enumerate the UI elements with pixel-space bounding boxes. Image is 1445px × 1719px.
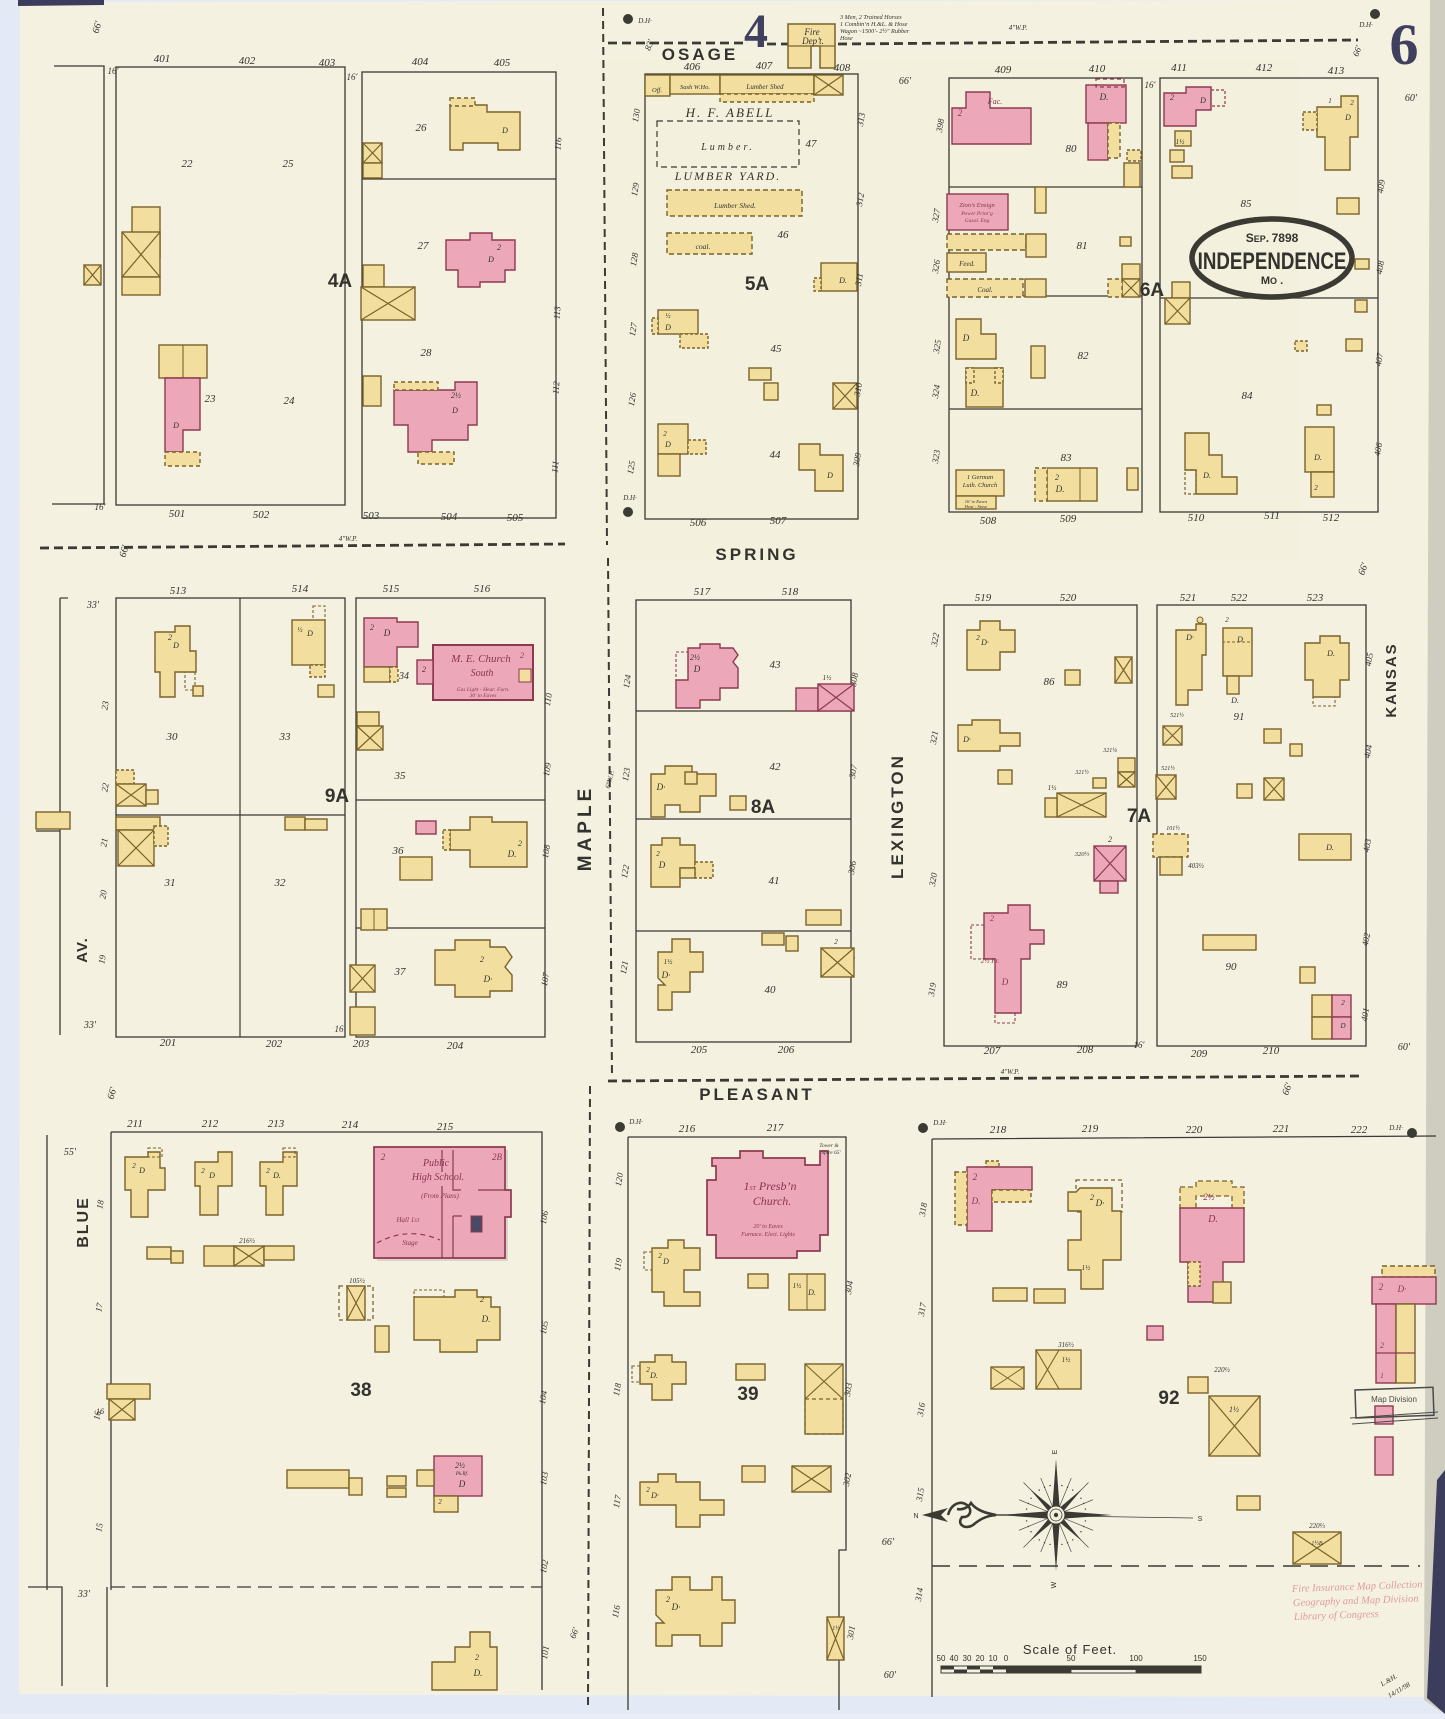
svg-text:401: 401 [154,53,171,65]
svg-text:213: 213 [268,1118,285,1130]
svg-text:2: 2 [370,623,374,632]
svg-text:86: 86 [1044,676,1056,688]
svg-text:BLUE: BLUE [75,1196,92,1248]
svg-text:SEP. 7898: SEP. 7898 [1246,231,1299,245]
svg-text:210: 210 [1263,1045,1280,1057]
svg-text:20: 20 [976,1654,985,1663]
svg-text:3 Men, 2 Trained Horses: 3 Men, 2 Trained Horses [839,14,902,21]
svg-text:66′: 66′ [899,76,912,87]
svg-text:2: 2 [381,1152,386,1162]
svg-text:502: 502 [253,509,270,521]
svg-text:1½: 1½ [1048,784,1058,792]
svg-text:16′: 16′ [1134,1040,1146,1050]
svg-text:1: 1 [1380,1372,1384,1380]
svg-text:23: 23 [205,393,217,405]
svg-text:Off.: Off. [652,87,662,94]
svg-text:2: 2 [1341,999,1345,1007]
svg-text:90: 90 [1226,961,1238,973]
svg-text:Hose: Hose [839,35,853,42]
svg-text:403: 403 [319,57,336,69]
svg-text:85: 85 [1241,198,1253,210]
svg-text:2½: 2½ [1203,1192,1215,1202]
svg-text:22: 22 [182,158,194,170]
svg-text:D.H·: D.H· [1388,1124,1403,1132]
svg-text:D.H·: D.H· [622,494,637,502]
svg-text:D·: D· [1397,1284,1407,1294]
svg-text:SPRING: SPRING [715,545,798,564]
svg-text:204: 204 [447,1040,464,1052]
svg-text:409: 409 [995,64,1012,76]
svg-text:40: 40 [950,1654,959,1663]
svg-text:33′: 33′ [77,1589,91,1600]
svg-text:508: 508 [980,515,997,527]
svg-text:2: 2 [438,1498,442,1506]
svg-text:D.: D. [1207,1214,1218,1225]
svg-text:513: 513 [170,585,187,597]
svg-text:D.: D. [507,849,517,859]
svg-text:D: D [658,860,666,870]
svg-text:217: 217 [767,1122,784,1134]
svg-text:1 German: 1 German [967,474,993,481]
svg-text:2: 2 [663,430,667,438]
svg-text:Church.: Church. [753,1194,792,1208]
svg-text:33′: 33′ [86,600,100,611]
svg-text:D: D [693,664,701,674]
svg-text:47: 47 [806,138,818,150]
svg-text:510: 510 [1188,512,1205,524]
svg-text:coal.: coal. [696,242,711,251]
svg-text:4″W.P.: 4″W.P. [1009,24,1028,32]
svg-text:4A: 4A [328,271,353,292]
svg-text:101½: 101½ [1166,825,1180,832]
svg-text:407: 407 [756,60,773,72]
svg-text:W: W [1051,1581,1058,1588]
svg-text:D.: D. [1230,696,1239,705]
svg-text:2½: 2½ [451,391,461,400]
svg-text:D: D [487,255,494,264]
svg-text:2: 2 [1350,99,1354,107]
svg-text:High School.: High School. [411,1172,464,1183]
svg-text:515: 515 [383,583,400,595]
svg-text:60′: 60′ [1405,93,1418,104]
svg-text:403½: 403½ [1188,862,1205,870]
svg-text:2: 2 [168,633,172,642]
svg-text:D·: D· [1185,633,1194,642]
svg-text:E: E [1052,1449,1059,1454]
svg-text:Stage: Stage [402,1239,418,1247]
svg-text:81: 81 [1077,240,1088,252]
svg-text:7A: 7A [1127,806,1152,827]
svg-text:Sash W.Ho.: Sash W.Ho. [680,84,710,91]
svg-text:H. F. ABELL: H. F. ABELL [685,105,775,120]
svg-text:33′: 33′ [83,1020,97,1031]
svg-text:208: 208 [1077,1044,1094,1056]
svg-text:105½: 105½ [349,1277,366,1285]
svg-text:28: 28 [421,347,433,359]
svg-text:211: 211 [127,1118,143,1130]
svg-text:D.: D. [1099,92,1109,102]
svg-text:30: 30 [166,731,179,743]
svg-text:20′ to Eaves: 20′ to Eaves [753,1224,783,1230]
svg-text:402: 402 [239,55,256,67]
svg-text:D.: D. [473,1668,483,1678]
svg-text:D: D [458,1479,466,1489]
svg-text:410: 410 [1089,63,1106,75]
svg-text:D.: D. [1055,484,1065,494]
svg-text:412: 412 [1256,62,1273,74]
svg-text:1½B: 1½B [1311,1540,1323,1547]
svg-text:50: 50 [937,1654,946,1663]
svg-text:27: 27 [418,240,430,252]
svg-text:D.H·: D.H· [1358,21,1373,29]
svg-text:INDEPENDENCE: INDEPENDENCE [1198,248,1347,275]
svg-text:220½: 220½ [1214,1366,1231,1374]
svg-text:321½: 321½ [1074,769,1089,776]
svg-text:216½: 216½ [239,1237,256,1245]
svg-text:Lumber Shed.: Lumber Shed. [713,201,756,210]
svg-text:8A: 8A [751,797,776,818]
svg-text:D.H·: D.H· [637,17,652,25]
svg-text:Map Division: Map Division [1371,1395,1417,1404]
svg-text:2: 2 [132,1162,136,1170]
svg-text:D: D [1339,1022,1345,1030]
svg-text:2: 2 [1225,616,1229,624]
svg-text:D: D [1236,635,1243,644]
svg-text:D.: D. [807,1288,816,1297]
svg-text:80: 80 [1066,143,1078,155]
svg-text:218: 218 [990,1124,1007,1136]
svg-text:89: 89 [1057,979,1069,991]
svg-text:16′: 16′ [95,502,107,512]
svg-text:511: 511 [1264,510,1280,522]
svg-text:D: D [501,126,508,135]
svg-text:32: 32 [274,877,287,889]
svg-text:Furnace. Elect. Lights: Furnace. Elect. Lights [740,1232,795,1238]
svg-text:100: 100 [1129,1654,1143,1663]
svg-text:D.: D. [1325,843,1334,852]
svg-text:521½: 521½ [1170,712,1184,719]
svg-text:60′: 60′ [1398,1042,1411,1053]
svg-text:KANSAS: KANSAS [1383,642,1400,717]
svg-text:LEXINGTON: LEXINGTON [888,753,907,879]
svg-text:Gasol. Eng: Gasol. Eng [965,218,990,224]
svg-text:1½: 1½ [1229,1405,1239,1414]
svg-text:AV.: AV. [74,937,91,963]
svg-text:D·: D· [650,1491,659,1500]
svg-text:Tower &: Tower & [819,1143,839,1149]
svg-text:Zion’s Ensign: Zion’s Ensign [959,202,994,209]
svg-text:220⅓: 220⅓ [1309,1522,1326,1530]
svg-text:404: 404 [412,56,429,68]
svg-text:1: 1 [1328,97,1332,105]
svg-text:1½: 1½ [664,958,674,966]
svg-text:M. E. Church: M. E. Church [450,653,511,665]
svg-text:MO .: MO . [1261,275,1283,287]
svg-text:4″W.P.: 4″W.P. [339,535,358,543]
svg-text:2: 2 [1379,1282,1384,1292]
svg-text:D·: D· [962,735,971,744]
svg-text:523: 523 [1307,592,1324,604]
svg-text:215: 215 [437,1121,454,1133]
svg-text:D: D [1001,977,1009,987]
svg-text:D.: D. [1202,471,1211,480]
svg-text:26: 26 [416,122,428,134]
svg-text:D.: D. [1313,453,1322,462]
svg-text:2: 2 [266,1167,270,1175]
svg-text:82: 82 [1078,350,1090,362]
svg-text:36: 36 [392,845,405,857]
svg-text:D.: D. [971,1196,981,1206]
svg-text:111: 111 [550,460,561,473]
svg-text:212: 212 [202,1118,219,1130]
svg-text:408: 408 [834,62,851,74]
svg-text:2: 2 [201,1167,205,1175]
svg-text:Wagon ~1500′- 2½″ Rubber: Wagon ~1500′- 2½″ Rubber [840,28,910,35]
svg-text:South: South [471,668,494,679]
svg-text:1½: 1½ [793,1282,803,1290]
svg-text:516: 516 [474,583,491,595]
svg-text:91: 91 [1234,711,1245,723]
svg-text:6: 6 [1390,12,1419,77]
svg-text:38: 38 [350,1380,371,1401]
svg-text:2: 2 [1055,473,1059,482]
svg-text:Lumber.: Lumber. [700,142,755,153]
svg-text:D.: D. [649,1371,658,1380]
svg-text:2½: 2½ [690,653,700,662]
svg-text:41: 41 [769,875,780,887]
svg-text:30′ to Eaves: 30′ to Eaves [469,693,497,699]
svg-text:D.: D. [970,388,980,398]
svg-text:60′: 60′ [884,1670,897,1681]
svg-text:2: 2 [422,665,426,674]
svg-text:2: 2 [480,1295,484,1304]
svg-text:205: 205 [691,1044,708,1056]
svg-text:219: 219 [1082,1123,1099,1135]
svg-text:30: 30 [963,1654,972,1663]
svg-text:D: D [138,1166,145,1175]
svg-text:92: 92 [1158,1388,1179,1409]
svg-text:31: 31 [164,877,176,889]
svg-text:2: 2 [475,1653,479,1662]
svg-text:214: 214 [342,1119,359,1131]
svg-text:D·: D· [1095,1198,1105,1208]
svg-text:411: 411 [1171,62,1187,74]
svg-text:Feed.: Feed. [958,260,975,268]
svg-text:D: D [1344,113,1351,122]
svg-text:45: 45 [771,343,783,355]
svg-text:2: 2 [656,850,660,858]
svg-text:1½: 1½ [823,674,833,682]
svg-text:33: 33 [279,731,292,743]
svg-text:Heat : Stove: Heat : Stove [964,504,988,509]
svg-text:505: 505 [507,512,524,524]
svg-text:1½: 1½ [1082,1264,1092,1272]
svg-text:Power Print’g: Power Print’g [960,211,993,217]
svg-text:Dep’t.: Dep’t. [801,36,824,46]
svg-text:2: 2 [658,1252,662,1260]
svg-text:1½: 1½ [832,1625,840,1632]
svg-text:39: 39 [737,1384,758,1405]
svg-text:4: 4 [744,5,768,58]
svg-text:Spire 65′: Spire 65′ [821,1150,841,1156]
svg-text:D·: D· [661,970,671,980]
svg-text:2: 2 [958,108,963,118]
svg-text:1½: 1½ [1176,138,1186,146]
svg-text:207: 207 [984,1045,1001,1057]
svg-text:150: 150 [1193,1654,1207,1663]
svg-text:D: D [172,641,179,650]
svg-text:Luth. Church: Luth. Church [962,482,997,489]
svg-text:(From Plans): (From Plans) [421,1192,459,1200]
svg-text:116: 116 [552,136,563,150]
svg-text:507: 507 [770,515,787,527]
svg-text:504: 504 [441,511,458,523]
svg-text:2: 2 [1170,93,1174,102]
svg-text:D·: D· [656,782,666,792]
svg-text:84: 84 [1242,390,1254,402]
svg-text:25: 25 [283,158,295,170]
svg-text:Fac.: Fac. [987,97,1002,106]
svg-text:512: 512 [1323,512,1340,524]
svg-text:66′: 66′ [882,1537,895,1548]
svg-text:46: 46 [778,229,790,241]
svg-text:2: 2 [497,243,501,252]
svg-text:222: 222 [1351,1124,1368,1136]
svg-text:LUMBER YARD.: LUMBER YARD. [674,169,782,183]
svg-text:83: 83 [1061,452,1073,464]
svg-text:316½: 316½ [1057,1341,1075,1349]
svg-text:2B: 2B [492,1152,503,1162]
svg-text:503: 503 [363,510,380,522]
svg-text:D: D [664,440,671,449]
svg-text:½: ½ [297,626,303,634]
svg-text:112: 112 [550,380,561,394]
svg-text:521½: 521½ [1161,765,1175,772]
svg-text:D: D [664,323,671,332]
svg-text:43: 43 [770,659,782,671]
svg-text:16′: 16′ [347,72,359,82]
svg-text:518: 518 [782,586,799,598]
svg-text:D.: D. [838,276,847,285]
svg-text:209: 209 [1191,1048,1208,1060]
svg-text:2: 2 [1090,1193,1094,1202]
svg-text:522: 522 [1231,592,1248,604]
svg-text:21: 21 [98,837,109,848]
svg-text:321¼: 321¼ [1102,748,1117,754]
svg-text:16′: 16′ [1145,80,1157,90]
svg-text:16′: 16′ [335,1024,347,1034]
svg-text:D: D [208,1171,215,1180]
svg-text:D: D [306,629,313,638]
svg-text:MAPLE: MAPLE [575,785,596,872]
svg-text:D: D [383,628,391,638]
svg-text:203: 203 [353,1038,370,1050]
svg-text:2: 2 [480,955,484,964]
svg-text:220: 220 [1186,1124,1203,1136]
svg-text:D.H·: D.H· [628,1118,643,1126]
svg-text:D: D [826,471,833,480]
svg-text:2: 2 [990,914,994,923]
svg-text:0: 0 [1004,1654,1009,1663]
svg-text:D·: D· [671,1602,681,1612]
svg-text:4″W.P.: 4″W.P. [1001,1068,1020,1076]
svg-text:16: 16 [96,1407,104,1416]
svg-text:D.H·: D.H· [932,1119,947,1127]
svg-text:519: 519 [975,592,992,604]
svg-text:520: 520 [1060,592,1077,604]
svg-text:D: D [1199,96,1206,105]
svg-text:406: 406 [684,61,701,73]
svg-text:2: 2 [666,1595,670,1604]
svg-text:509: 509 [1060,513,1077,525]
svg-text:D·: D· [483,974,493,984]
svg-text:221: 221 [1273,1123,1290,1135]
svg-text:5A: 5A [745,274,770,295]
svg-text:N: N [913,1513,918,1520]
svg-text:514: 514 [292,583,309,595]
svg-text:201: 201 [160,1037,177,1049]
svg-text:D.: D. [481,1314,491,1324]
svg-text:D: D [662,1257,669,1266]
svg-text:2: 2 [973,1172,978,1182]
svg-text:35: 35 [394,770,407,782]
svg-text:24: 24 [284,395,296,407]
svg-text:501: 501 [169,508,186,520]
svg-text:40: 40 [765,984,777,996]
svg-text:202: 202 [266,1038,283,1050]
svg-text:2: 2 [646,1486,650,1494]
svg-text:2: 2 [1314,484,1318,492]
svg-text:42: 42 [770,761,782,773]
svg-text:2½: 2½ [455,1461,465,1470]
svg-text:Public: Public [422,1158,450,1169]
svg-text:34: 34 [398,671,409,682]
svg-text:405: 405 [494,57,511,69]
svg-text:2: 2 [834,938,838,946]
svg-text:37: 37 [394,966,407,978]
svg-text:206: 206 [778,1044,795,1056]
svg-text:320½: 320½ [1074,851,1090,858]
svg-text:521: 521 [1180,592,1197,604]
svg-text:2: 2 [520,651,524,660]
svg-text:½: ½ [665,312,671,320]
svg-text:517: 517 [694,586,711,598]
svg-text:D: D [962,333,970,343]
svg-text:D: D [172,421,179,430]
svg-text:2: 2 [518,839,522,848]
svg-text:55′: 55′ [64,1147,77,1158]
svg-text:44: 44 [770,449,782,461]
svg-text:2: 2 [1108,835,1112,844]
svg-text:Pk.Rf.: Pk.Rf. [455,1472,468,1477]
svg-text:113: 113 [551,305,562,319]
svg-text:D.: D. [272,1171,281,1180]
svg-text:50: 50 [1067,1654,1076,1663]
svg-text:1½: 1½ [1062,1356,1072,1364]
svg-text:216: 216 [679,1123,696,1135]
svg-text:9A: 9A [325,786,350,807]
svg-text:1 Combin’n H.&L. & Hose: 1 Combin’n H.&L. & Hose [840,21,908,28]
svg-text:D.: D. [1326,649,1335,658]
svg-text:2: 2 [1380,1341,1384,1350]
svg-text:Coal.: Coal. [977,286,993,294]
svg-text:Lumber Shed: Lumber Shed [745,83,784,91]
svg-text:D·: D· [980,638,989,647]
svg-text:413: 413 [1328,65,1345,77]
svg-text:D: D [451,406,458,415]
svg-text:506: 506 [690,517,707,529]
svg-text:S: S [1198,1516,1203,1523]
